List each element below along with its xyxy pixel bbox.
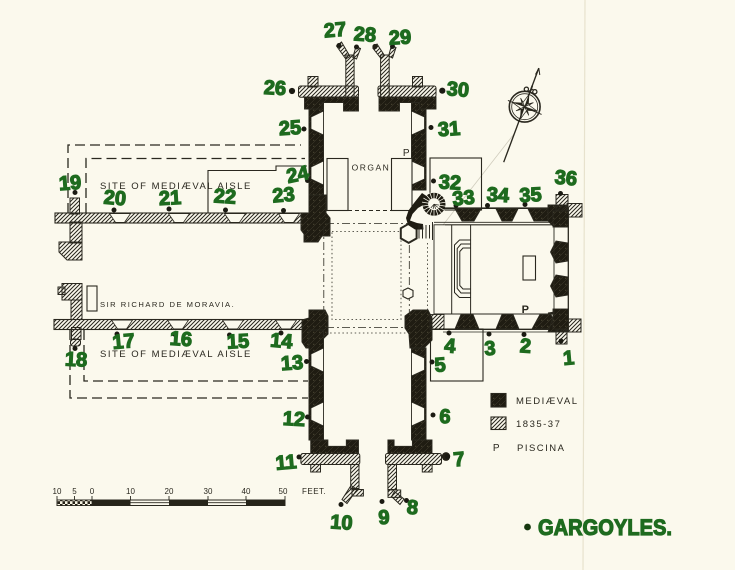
svg-text:11: 11 [275, 451, 298, 475]
svg-text:22: 22 [213, 185, 237, 208]
svg-text:21: 21 [158, 187, 181, 210]
svg-text:9: 9 [378, 507, 390, 530]
svg-text:10: 10 [53, 487, 62, 496]
svg-text:6: 6 [439, 406, 451, 429]
svg-text:14: 14 [269, 330, 294, 354]
svg-text:15: 15 [226, 330, 249, 353]
svg-text:1835-37: 1835-37 [516, 419, 561, 430]
svg-text:34: 34 [486, 184, 511, 208]
svg-text:28: 28 [353, 23, 377, 46]
svg-text:25: 25 [278, 117, 302, 140]
svg-text:ORGAN: ORGAN [352, 163, 391, 173]
svg-text:16: 16 [169, 328, 193, 351]
svg-text:36: 36 [554, 167, 578, 191]
svg-text:50: 50 [279, 487, 288, 496]
svg-text:31: 31 [437, 118, 461, 141]
svg-text:3: 3 [484, 338, 496, 361]
svg-text:10: 10 [126, 487, 135, 496]
svg-text:PISCINA: PISCINA [517, 443, 566, 454]
svg-text:10: 10 [330, 511, 354, 534]
svg-text:FEET.: FEET. [302, 487, 326, 496]
svg-text:5: 5 [72, 487, 77, 496]
svg-text:7: 7 [452, 448, 465, 471]
svg-text:1: 1 [562, 347, 575, 370]
svg-text:5: 5 [434, 354, 447, 377]
svg-text:18: 18 [64, 348, 87, 371]
svg-text:GARGOYLES.: GARGOYLES. [538, 515, 672, 540]
svg-text:20: 20 [165, 487, 174, 496]
svg-text:29: 29 [388, 26, 411, 49]
svg-text:30: 30 [204, 487, 213, 496]
svg-text:35: 35 [519, 184, 542, 207]
svg-text:26: 26 [263, 77, 286, 100]
svg-text:0: 0 [90, 487, 95, 496]
svg-text:P: P [522, 304, 531, 316]
svg-text:SIR RICHARD DE MORAVIA.: SIR RICHARD DE MORAVIA. [100, 300, 235, 309]
svg-text:12: 12 [282, 408, 305, 431]
svg-text:19: 19 [58, 172, 82, 195]
svg-text:30: 30 [446, 78, 470, 102]
svg-text:20: 20 [103, 187, 127, 211]
svg-text:P: P [493, 443, 501, 454]
svg-text:8: 8 [406, 497, 419, 520]
svg-text:13: 13 [280, 352, 304, 375]
svg-text:17: 17 [112, 330, 136, 354]
svg-text:27: 27 [323, 19, 347, 43]
svg-text:33: 33 [452, 187, 476, 211]
svg-text:P: P [403, 148, 411, 159]
svg-text:40: 40 [242, 487, 251, 496]
svg-text:MEDIÆVAL: MEDIÆVAL [516, 396, 579, 407]
svg-text:2: 2 [519, 335, 532, 358]
